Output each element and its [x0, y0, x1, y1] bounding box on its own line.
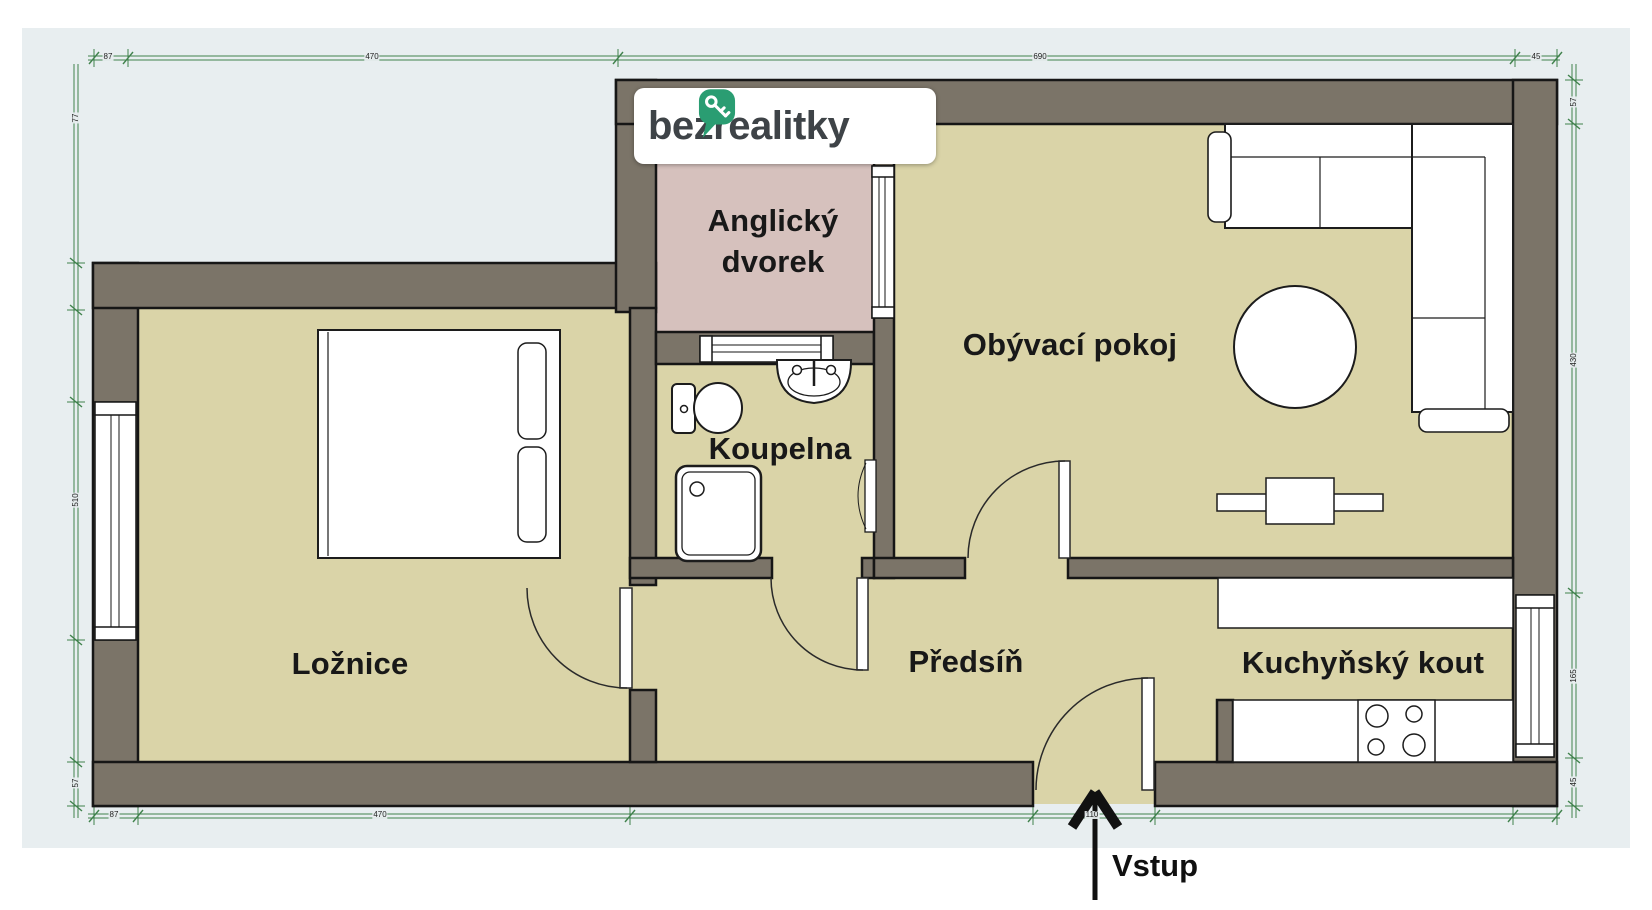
window-kitchen — [1516, 595, 1554, 757]
room-label-living-room: Obývací pokoj — [963, 327, 1178, 363]
bezrealitky-logo-text: bezrealitky — [648, 104, 849, 149]
bezrealitky-logo-card: bezrealitky — [634, 88, 936, 164]
room-label-courtyard-line1: Anglický — [708, 203, 839, 239]
floor-hallway — [630, 578, 890, 762]
dimension-label: 77 — [72, 113, 80, 124]
entrance-label: Vstup — [1112, 848, 1198, 884]
floorplan-image: bezrealitky Ložnice Koupelna Předsíň Obý… — [0, 0, 1652, 910]
sofa-armrest — [1419, 409, 1509, 432]
kitchen-counter-top — [1218, 578, 1513, 628]
stove — [1358, 700, 1435, 762]
dimension-label: 470 — [364, 53, 379, 61]
pillow — [518, 343, 546, 439]
wall-bedroom-east-upper — [630, 308, 656, 585]
window-bathroom — [700, 336, 833, 362]
window-bedroom — [95, 402, 136, 640]
room-label-bedroom: Ložnice — [292, 646, 409, 682]
dimension-label: 87 — [109, 811, 120, 819]
round-table — [1234, 286, 1356, 408]
dimension-label: 690 — [1032, 53, 1047, 61]
wall-bedroom-east-lower — [630, 690, 656, 762]
wall-bottom-right — [1155, 762, 1557, 806]
room-label-bathroom: Koupelna — [709, 431, 852, 467]
pillow — [518, 447, 546, 542]
dimension-label: 430 — [1570, 352, 1578, 367]
room-label-hallway: Předsíň — [908, 644, 1023, 680]
wall-bottom-left — [93, 762, 1033, 806]
bezrealitky-pin-icon — [698, 88, 736, 140]
sofa-armrest — [1208, 132, 1231, 222]
wall-bathroom-south-stub — [862, 558, 874, 578]
shower — [676, 466, 761, 561]
wall-bedroom-top — [93, 263, 656, 308]
dimension-label: 45 — [1570, 777, 1578, 788]
wall-kitchen-pier — [1217, 700, 1233, 762]
dimension-label: 470 — [372, 811, 387, 819]
toilet — [672, 383, 742, 433]
dimension-label: 510 — [72, 492, 80, 507]
wall-kitchen-north — [1068, 558, 1513, 578]
dimension-label: 45 — [1531, 53, 1542, 61]
room-label-kitchen: Kuchyňský kout — [1242, 645, 1484, 681]
window-courtyard-living — [872, 166, 894, 318]
dimension-label: 57 — [1570, 97, 1578, 108]
room-label-courtyard-line2: dvorek — [722, 244, 825, 280]
dimension-label: 57 — [72, 778, 80, 789]
dimension-label: 87 — [103, 53, 114, 61]
dimension-label: 165 — [1570, 668, 1578, 683]
bed — [318, 330, 560, 558]
dimension-label: 110 — [1085, 811, 1100, 819]
wall-hall-living-left — [874, 558, 965, 578]
